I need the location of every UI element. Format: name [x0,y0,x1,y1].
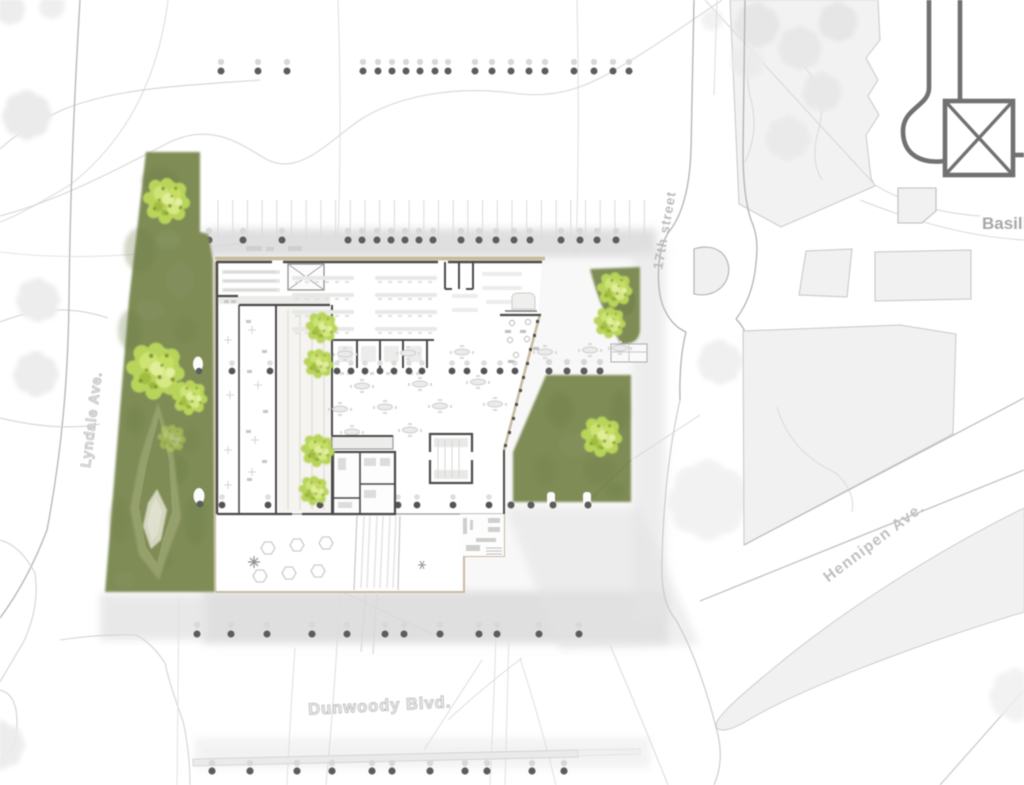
svg-text:Basilica: Basilica [982,214,1024,233]
